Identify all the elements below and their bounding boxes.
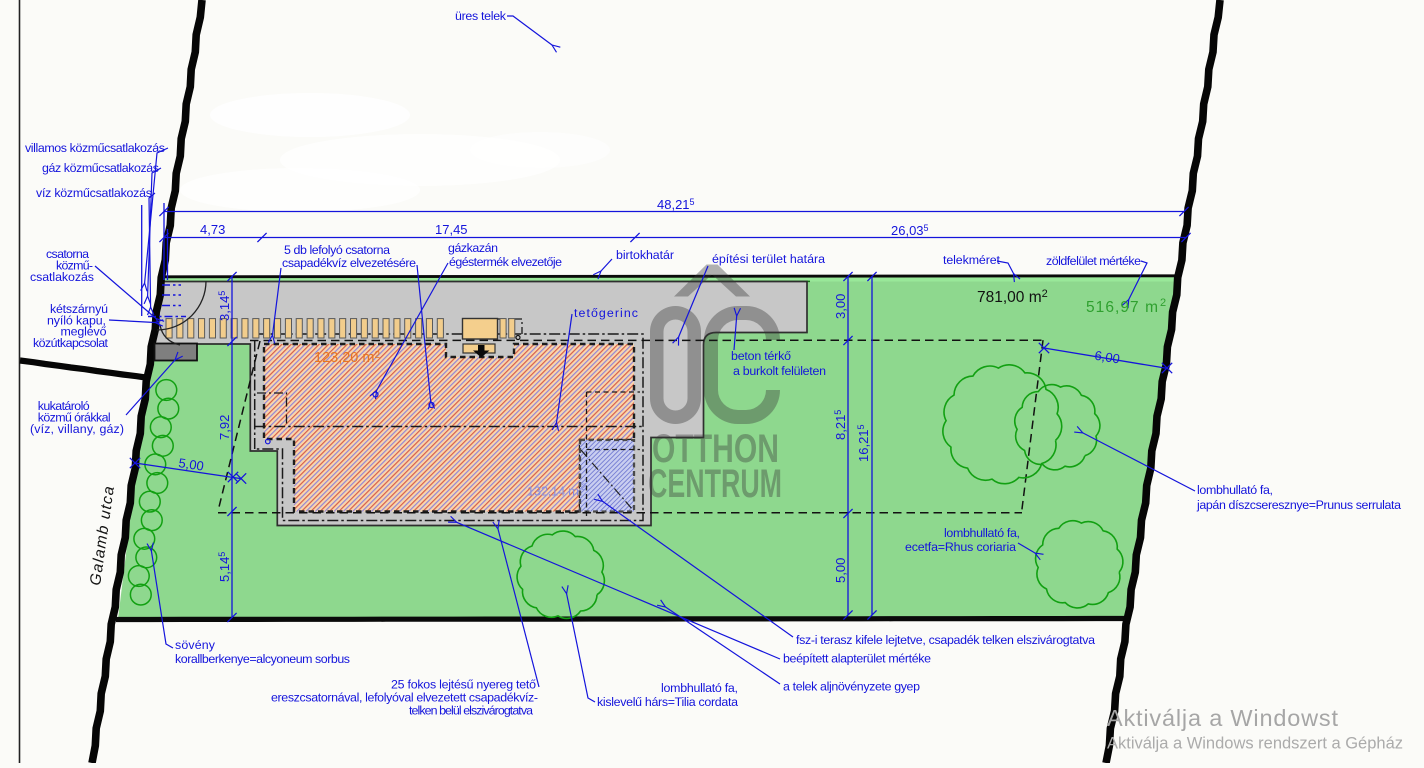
svg-text:beépített alapterület mértéke: beépített alapterület mértéke bbox=[783, 652, 931, 666]
svg-text:gáz közműcsatlakozás: gáz közműcsatlakozás bbox=[42, 161, 159, 175]
svg-text:132,14 m: 132,14 m bbox=[527, 484, 579, 499]
svg-text:lombhullató fa,: lombhullató fa, bbox=[661, 681, 738, 695]
svg-text:CENTRUM: CENTRUM bbox=[648, 462, 782, 506]
svg-text:3,00: 3,00 bbox=[833, 294, 848, 319]
svg-text:villamos közműcsatlakozás: villamos közműcsatlakozás bbox=[25, 141, 165, 155]
svg-text:építési terület határa: építési terület határa bbox=[712, 252, 825, 266]
svg-text:csatlakozás: csatlakozás bbox=[30, 270, 94, 284]
svg-text:17,45: 17,45 bbox=[435, 222, 468, 237]
svg-text:2: 2 bbox=[581, 482, 586, 493]
svg-text:a telek aljnövényzete gyep: a telek aljnövényzete gyep bbox=[783, 680, 920, 694]
svg-text:tetőgerinc: tetőgerinc bbox=[574, 306, 638, 320]
svg-text:5,00: 5,00 bbox=[833, 558, 848, 583]
svg-text:lombhullató fa,: lombhullató fa, bbox=[944, 526, 1020, 540]
svg-text:zöldfelület mértéke: zöldfelület mértéke bbox=[1046, 254, 1141, 268]
svg-text:telekméret: telekméret bbox=[943, 253, 1001, 267]
svg-text:gázkazán: gázkazán bbox=[448, 241, 498, 255]
svg-text:26,035: 26,035 bbox=[891, 223, 929, 238]
svg-text:lombhullató fa,: lombhullató fa, bbox=[1197, 483, 1273, 497]
svg-text:2: 2 bbox=[1160, 297, 1166, 309]
svg-text:516,97 m: 516,97 m bbox=[1086, 299, 1158, 316]
svg-text:fsz-i terasz kifele lejtetve,: fsz-i terasz kifele lejtetve, csapadék t… bbox=[796, 633, 1095, 647]
svg-text:a burkolt felületen: a burkolt felületen bbox=[733, 364, 826, 378]
svg-text:csapadékvíz elvezetésére: csapadékvíz elvezetésére bbox=[282, 256, 416, 270]
svg-text:ereszcsatornával, lefolyóval e: ereszcsatornával, lefolyóval elvezetett … bbox=[271, 691, 538, 705]
svg-text:7,92: 7,92 bbox=[217, 415, 232, 440]
svg-text:égéstermék elvezetője: égéstermék elvezetője bbox=[449, 255, 562, 269]
svg-text:birtokhatár: birtokhatár bbox=[616, 248, 674, 262]
svg-text:közútkapcsolat: közútkapcsolat bbox=[33, 336, 109, 350]
svg-text:Aktiválja a Windowst: Aktiválja a Windowst bbox=[1107, 705, 1338, 731]
svg-text:16,215: 16,215 bbox=[856, 424, 871, 462]
svg-text:telken belül elszivárogtatva: telken belül elszivárogtatva bbox=[409, 704, 533, 718]
svg-text:5 db lefolyó csatorna: 5 db lefolyó csatorna bbox=[284, 243, 390, 257]
svg-text:korallberkenye=alcyoneum sorbu: korallberkenye=alcyoneum sorbus bbox=[175, 652, 350, 666]
svg-text:4,73: 4,73 bbox=[200, 222, 225, 237]
svg-text:üres telek: üres telek bbox=[455, 9, 507, 23]
svg-text:(víz, villany, gáz): (víz, villany, gáz) bbox=[30, 422, 124, 436]
svg-text:beton térkő: beton térkő bbox=[731, 349, 791, 363]
svg-text:25 fokos lejtésű nyereg tető: 25 fokos lejtésű nyereg tető bbox=[391, 678, 536, 692]
svg-text:123,20 m2: 123,20 m2 bbox=[314, 350, 380, 366]
svg-text:japán díszcseresznye=Prunus se: japán díszcseresznye=Prunus serrulata bbox=[1196, 498, 1401, 512]
svg-text:781,00 m2: 781,00 m2 bbox=[977, 288, 1048, 306]
svg-text:Aktiválja a Windows rendszert: Aktiválja a Windows rendszert a Gépház bbox=[1107, 735, 1403, 753]
svg-text:víz közműcsatlakozás: víz közműcsatlakozás bbox=[36, 186, 152, 200]
svg-text:kislevelű hárs=Tilia cordata: kislevelű hárs=Tilia cordata bbox=[597, 695, 738, 709]
svg-text:ecetfa=Rhus coriaria: ecetfa=Rhus coriaria bbox=[905, 540, 1016, 554]
svg-text:sövény: sövény bbox=[175, 638, 216, 652]
svg-text:48,215: 48,215 bbox=[657, 197, 695, 212]
